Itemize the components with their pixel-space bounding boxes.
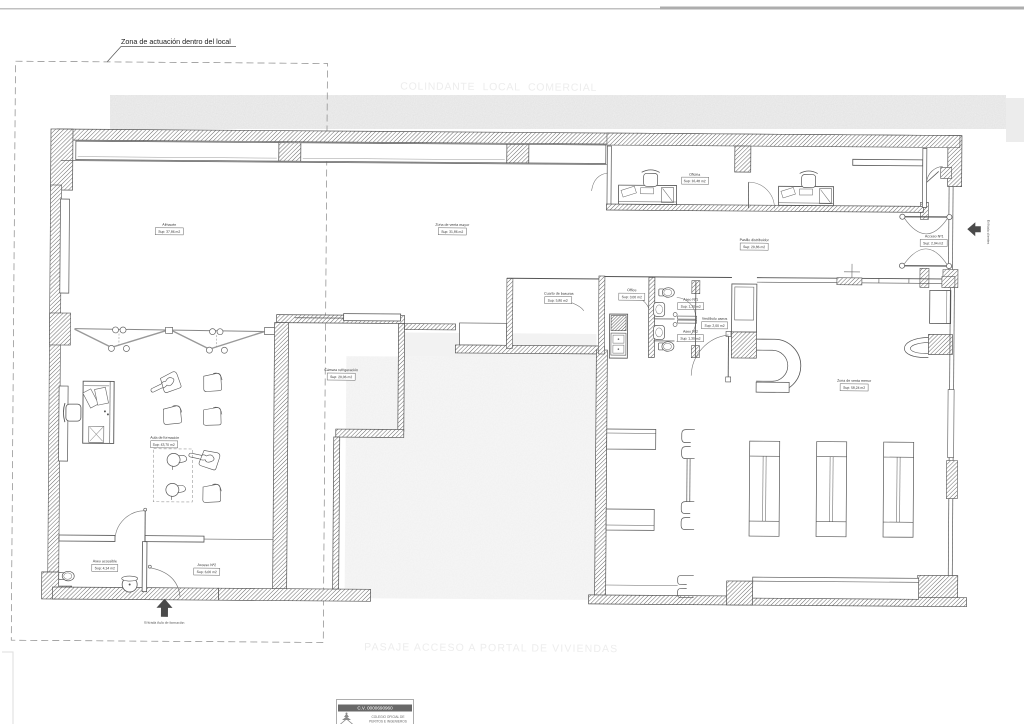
svg-text:Sup: 5,80 m2: Sup: 5,80 m2: [548, 299, 568, 303]
svg-text:Sup: 1,30 m2: Sup: 1,30 m2: [680, 337, 700, 341]
svg-text:Sup: 6,00 m2: Sup: 6,00 m2: [197, 570, 217, 574]
svg-text:Acceso Nº1: Acceso Nº1: [925, 234, 944, 238]
svg-text:Sup: 3,00 m2: Sup: 3,00 m2: [622, 295, 642, 299]
svg-text:Sup: 43,70 m2: Sup: 43,70 m2: [153, 443, 175, 447]
svg-text:Sup: 20,06 m2: Sup: 20,06 m2: [330, 375, 352, 379]
svg-text:Zona de actuación dentro del l: Zona de actuación dentro del local: [121, 37, 231, 46]
svg-text:Aseo accesible: Aseo accesible: [93, 559, 117, 563]
svg-text:Sup: 31,86 m2: Sup: 31,86 m2: [441, 230, 463, 234]
svg-text:COLEGIO OFICIAL DE: COLEGIO OFICIAL DE: [371, 715, 404, 719]
svg-text:Cámara refrigeración: Cámara refrigeración: [324, 368, 358, 372]
svg-text:COLINDANTE LOCAL COMERCIAL: COLINDANTE LOCAL COMERCIAL: [400, 81, 596, 94]
svg-text:Oficina: Oficina: [689, 173, 700, 177]
svg-text:Sup: 58,24 m2: Sup: 58,24 m2: [843, 386, 865, 390]
svg-text:Sup: 2,00 m2: Sup: 2,00 m2: [704, 324, 724, 328]
svg-text:Sup: 4,14 m2: Sup: 4,14 m2: [95, 566, 115, 570]
svg-text:Almacén: Almacén: [162, 223, 176, 227]
svg-text:Sup: 16,48 m2: Sup: 16,48 m2: [684, 179, 706, 183]
svg-text:Sup: 37,86 m2: Sup: 37,86 m2: [158, 230, 180, 234]
svg-text:Acceso Nº2: Acceso Nº2: [197, 563, 216, 567]
svg-text:Entrada Aula de formación: Entrada Aula de formación: [144, 621, 184, 625]
svg-text:Pasillo distribuidor: Pasillo distribuidor: [740, 238, 770, 242]
svg-text:PASAJE ACCESO A PORTAL DE VIVI: PASAJE ACCESO A PORTAL DE VIVIENDAS: [364, 641, 617, 655]
svg-text:Cuarto de basuras: Cuarto de basuras: [544, 292, 574, 296]
svg-text:Zona de venta menor: Zona de venta menor: [837, 379, 872, 383]
svg-text:Sup: 1,30 m2: Sup: 1,30 m2: [681, 305, 701, 309]
svg-text:Office: Office: [627, 288, 636, 292]
svg-text:Zona de venta mayor: Zona de venta mayor: [435, 223, 470, 227]
svg-text:C.V. 0000690960: C.V. 0000690960: [357, 706, 393, 711]
svg-text:Sup: 2,94 m2: Sup: 2,94 m2: [923, 241, 943, 245]
svg-text:Sup: 20,86 m2: Sup: 20,86 m2: [743, 245, 765, 249]
svg-text:Aula de formación: Aula de formación: [150, 436, 179, 440]
svg-text:PERITOS E INGENIEROS: PERITOS E INGENIEROS: [369, 720, 407, 724]
svg-text:Vestíbulo aseos: Vestíbulo aseos: [702, 317, 728, 321]
svg-text:Entrada clientes: Entrada clientes: [986, 220, 990, 245]
